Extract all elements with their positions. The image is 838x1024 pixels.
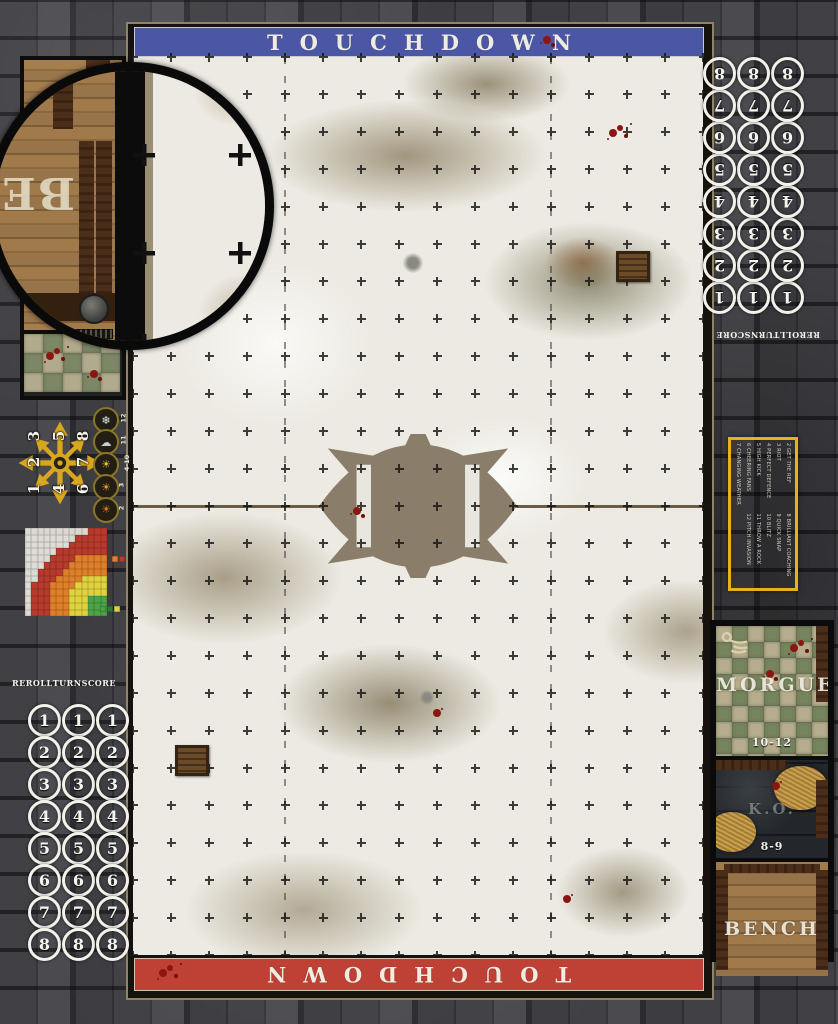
blood-splatter bbox=[790, 644, 798, 652]
grid-cross bbox=[243, 539, 252, 548]
turn-track-header: TURN bbox=[750, 330, 779, 340]
grid-cross bbox=[547, 352, 556, 361]
grid-cross bbox=[509, 277, 518, 286]
grid-cross bbox=[129, 614, 138, 623]
grid-cross bbox=[243, 913, 252, 922]
checker-tile bbox=[780, 706, 796, 722]
grid-cross bbox=[357, 165, 366, 174]
grid-cross bbox=[395, 53, 404, 62]
turn-track-headers: REROLLTURNSCORE bbox=[12, 678, 116, 688]
grid-cross bbox=[357, 90, 366, 99]
blood-splatter bbox=[563, 895, 571, 903]
grid-cross bbox=[395, 801, 404, 810]
turn-track-circle: 6 bbox=[771, 121, 804, 154]
checker-tile bbox=[24, 373, 43, 392]
grid-cross bbox=[547, 689, 556, 698]
grid-cross bbox=[547, 165, 556, 174]
grid-cross bbox=[699, 314, 708, 323]
grid-cross bbox=[623, 614, 632, 623]
grid-cross bbox=[167, 502, 176, 511]
grid-cross bbox=[623, 576, 632, 585]
turn-track-circle: 4 bbox=[737, 185, 770, 218]
turn-track-circle: 2 bbox=[28, 736, 61, 769]
range-cell bbox=[25, 582, 31, 589]
turn-track-circle: 8 bbox=[28, 928, 61, 961]
grid-cross bbox=[585, 576, 594, 585]
grid-cross bbox=[395, 389, 404, 398]
weather-roll-label: 3 bbox=[117, 483, 125, 488]
grid-cross bbox=[585, 764, 594, 773]
checker-tile bbox=[764, 642, 780, 658]
grid-cross bbox=[395, 127, 404, 136]
scatter-number: 1 bbox=[25, 484, 43, 494]
grid-cross bbox=[243, 838, 252, 847]
grid-cross bbox=[205, 876, 214, 885]
grid-cross bbox=[547, 502, 556, 511]
grid-cross bbox=[699, 576, 708, 585]
grid-cross bbox=[205, 427, 214, 436]
grid-cross bbox=[319, 277, 328, 286]
grid-cross bbox=[585, 352, 594, 361]
range-cell bbox=[101, 562, 107, 569]
grid-cross bbox=[585, 614, 594, 623]
checker-tile bbox=[748, 658, 764, 674]
grid-cross bbox=[205, 614, 214, 623]
grid-cross bbox=[471, 53, 480, 62]
turn-track-circle: 5 bbox=[28, 832, 61, 865]
grid-cross bbox=[623, 90, 632, 99]
morgue-box: MORGUE 10-12 bbox=[716, 626, 828, 756]
checker-tile bbox=[748, 706, 764, 722]
checker-tile bbox=[732, 754, 748, 756]
grid-cross bbox=[167, 726, 176, 735]
bench-box: BENCH bbox=[716, 862, 828, 976]
checker-tile bbox=[780, 658, 796, 674]
grid-cross bbox=[357, 427, 366, 436]
range-cell bbox=[101, 576, 107, 583]
grid-cross bbox=[319, 764, 328, 773]
grid-cross bbox=[433, 314, 442, 323]
grid-cross bbox=[243, 502, 252, 511]
scatter-number: 2 bbox=[25, 457, 43, 467]
grid-cross bbox=[471, 838, 480, 847]
touchdown-banner-bottom: TOUCHDOWN bbox=[134, 958, 704, 991]
grid-cross bbox=[699, 502, 708, 511]
grid-cross bbox=[319, 90, 328, 99]
range-legend-swatch bbox=[114, 606, 120, 612]
grid-cross bbox=[547, 764, 556, 773]
turn-track-circle: 7 bbox=[28, 896, 61, 929]
grid-cross bbox=[357, 838, 366, 847]
grid-cross bbox=[661, 502, 670, 511]
range-cell bbox=[50, 548, 56, 555]
wood-post bbox=[716, 760, 786, 770]
grid-cross bbox=[585, 53, 594, 62]
grid-cross bbox=[585, 314, 594, 323]
morgue-range: 10-12 bbox=[716, 736, 828, 749]
range-cell bbox=[38, 562, 44, 569]
turn-track-circle: 6 bbox=[28, 864, 61, 897]
grid-cross bbox=[433, 913, 442, 922]
turn-track-circle: 2 bbox=[771, 249, 804, 282]
grid-cross bbox=[167, 689, 176, 698]
grid-cross bbox=[281, 913, 290, 922]
grid-cross bbox=[319, 389, 328, 398]
turn-track-circle: 6 bbox=[62, 864, 95, 897]
grid-cross bbox=[623, 165, 632, 174]
grid-cross bbox=[243, 801, 252, 810]
grid-cross bbox=[281, 464, 290, 473]
grid-cross bbox=[471, 651, 480, 660]
grey-splat bbox=[419, 690, 435, 705]
grid-cross bbox=[395, 352, 404, 361]
grid-cross bbox=[395, 913, 404, 922]
grid-cross bbox=[395, 726, 404, 735]
grid-cross bbox=[547, 464, 556, 473]
grid-cross bbox=[509, 502, 518, 511]
grid-cross bbox=[243, 651, 252, 660]
grid-cross bbox=[129, 576, 138, 585]
range-legend-swatch bbox=[100, 606, 106, 612]
grid-cross bbox=[205, 726, 214, 735]
grid-cross bbox=[547, 90, 556, 99]
checker-tile bbox=[796, 754, 812, 756]
grid-cross bbox=[585, 427, 594, 436]
grid-cross bbox=[699, 614, 708, 623]
grid-cross bbox=[585, 127, 594, 136]
grid-cross bbox=[281, 614, 290, 623]
grid-cross bbox=[433, 651, 442, 660]
grid-cross bbox=[661, 764, 670, 773]
grid-cross bbox=[471, 464, 480, 473]
grid-cross bbox=[281, 314, 290, 323]
grid-cross bbox=[471, 240, 480, 249]
grid-cross bbox=[281, 801, 290, 810]
turn-track-circle: 8 bbox=[771, 57, 804, 90]
grid-cross bbox=[585, 240, 594, 249]
grid-cross bbox=[357, 689, 366, 698]
grid-cross bbox=[395, 614, 404, 623]
range-cell bbox=[44, 555, 50, 562]
grid-cross bbox=[129, 427, 138, 436]
grid-cross bbox=[357, 801, 366, 810]
grid-cross bbox=[661, 202, 670, 211]
grid-cross bbox=[395, 464, 404, 473]
grid-cross bbox=[433, 876, 442, 885]
grid-cross bbox=[357, 876, 366, 885]
scatter-number: 6 bbox=[74, 484, 92, 494]
grid-cross bbox=[509, 614, 518, 623]
grid-cross bbox=[623, 913, 632, 922]
grid-cross bbox=[471, 127, 480, 136]
grid-cross bbox=[433, 202, 442, 211]
grid-cross bbox=[623, 352, 632, 361]
turn-track-circle: 1 bbox=[703, 281, 736, 314]
grid-cross bbox=[243, 464, 252, 473]
grid-cross bbox=[243, 576, 252, 585]
checker-tile bbox=[796, 658, 812, 674]
grid-cross bbox=[509, 576, 518, 585]
turn-track-circle: 6 bbox=[96, 864, 129, 897]
weather-roll-label: 12 bbox=[120, 413, 128, 422]
grid-cross bbox=[699, 801, 708, 810]
grid-cross bbox=[281, 389, 290, 398]
grid-cross bbox=[585, 726, 594, 735]
magnified-dugout-border bbox=[115, 71, 145, 341]
grid-cross bbox=[623, 764, 632, 773]
turn-track-circle: 8 bbox=[96, 928, 129, 961]
range-legend-swatch bbox=[107, 606, 113, 612]
grid-cross bbox=[547, 913, 556, 922]
skeleton-decal bbox=[720, 630, 754, 660]
grid-cross bbox=[205, 801, 214, 810]
grid-cross bbox=[471, 502, 480, 511]
grid-cross bbox=[129, 913, 138, 922]
grid-cross bbox=[319, 913, 328, 922]
turn-track-left: REROLLTURNSCORE111222333444555666777888 bbox=[8, 678, 120, 968]
grid-cross bbox=[623, 539, 632, 548]
grid-cross bbox=[205, 539, 214, 548]
checker-tile bbox=[812, 754, 828, 756]
blood-splatter bbox=[609, 129, 617, 137]
grid-cross bbox=[661, 726, 670, 735]
grid-cross bbox=[547, 539, 556, 548]
grid-cross bbox=[623, 127, 632, 136]
grid-cross bbox=[319, 314, 328, 323]
checker-tile bbox=[796, 626, 812, 642]
grid-cross bbox=[471, 314, 480, 323]
grid-cross bbox=[509, 464, 518, 473]
grid-cross bbox=[357, 539, 366, 548]
grid-cross bbox=[357, 651, 366, 660]
turn-track-circle: 1 bbox=[28, 704, 61, 737]
grid-cross bbox=[357, 277, 366, 286]
grid-cross bbox=[547, 202, 556, 211]
grid-cross bbox=[509, 726, 518, 735]
blood-splatter bbox=[46, 352, 54, 360]
grid-cross bbox=[281, 53, 290, 62]
scatter-number: 7 bbox=[74, 457, 92, 467]
grid-cross bbox=[281, 539, 290, 548]
grid-cross bbox=[509, 913, 518, 922]
checker-tile bbox=[732, 706, 748, 722]
turn-track-circle: 5 bbox=[62, 832, 95, 865]
turn-track-circle: 7 bbox=[737, 89, 770, 122]
blood-splatter bbox=[772, 782, 780, 790]
checker-tile bbox=[101, 373, 120, 392]
grid-cross bbox=[585, 464, 594, 473]
grid-cross bbox=[433, 90, 442, 99]
grid-cross bbox=[623, 427, 632, 436]
grid-cross bbox=[357, 389, 366, 398]
grid-cross bbox=[167, 651, 176, 660]
grid-cross bbox=[509, 689, 518, 698]
grid-cross bbox=[395, 838, 404, 847]
grid-cross bbox=[661, 801, 670, 810]
turn-track-circle: 1 bbox=[771, 281, 804, 314]
grid-cross bbox=[243, 389, 252, 398]
turn-track-circle: 2 bbox=[737, 249, 770, 282]
grid-cross bbox=[129, 801, 138, 810]
turn-track-circle: 6 bbox=[703, 121, 736, 154]
grid-cross bbox=[585, 539, 594, 548]
grid-cross bbox=[699, 689, 708, 698]
turn-track-circle: 2 bbox=[96, 736, 129, 769]
grid-cross bbox=[509, 801, 518, 810]
grey-splat bbox=[402, 253, 424, 273]
grid-cross bbox=[661, 389, 670, 398]
grid-cross bbox=[357, 202, 366, 211]
blood-splatter bbox=[90, 370, 98, 378]
grid-cross bbox=[433, 165, 442, 174]
grid-cross bbox=[167, 427, 176, 436]
grid-cross bbox=[661, 464, 670, 473]
grid-cross bbox=[281, 352, 290, 361]
grid-cross bbox=[167, 389, 176, 398]
grid-cross bbox=[319, 651, 328, 660]
grid-cross bbox=[661, 277, 670, 286]
turn-track-header: SCORE bbox=[716, 330, 750, 340]
range-cell bbox=[25, 589, 31, 596]
grid-cross bbox=[471, 277, 480, 286]
grid-cross bbox=[357, 614, 366, 623]
sweltering-heat-icon: ☀ bbox=[93, 497, 119, 523]
grid-cross bbox=[547, 53, 556, 62]
grid-cross bbox=[281, 165, 290, 174]
grid-cross bbox=[509, 127, 518, 136]
grid-cross bbox=[509, 838, 518, 847]
turn-track-header: TURN bbox=[53, 678, 82, 688]
grid-cross bbox=[661, 314, 670, 323]
grid-cross bbox=[357, 314, 366, 323]
turn-track-circle: 6 bbox=[737, 121, 770, 154]
grid-cross bbox=[547, 427, 556, 436]
grid-cross bbox=[243, 427, 252, 436]
turn-track-circle: 3 bbox=[96, 768, 129, 801]
grid-cross bbox=[699, 464, 708, 473]
dugout-right: MORGUE 10-12 K.O. 8-9 BENCH bbox=[710, 620, 834, 962]
grid-cross bbox=[699, 838, 708, 847]
grid-cross bbox=[509, 240, 518, 249]
grid-cross bbox=[585, 277, 594, 286]
range-cell bbox=[25, 596, 31, 603]
grid-cross bbox=[509, 651, 518, 660]
grid-cross bbox=[167, 539, 176, 548]
kickoff-entry: 3 RIOT bbox=[776, 443, 781, 513]
grid-cross bbox=[319, 838, 328, 847]
grid-cross bbox=[471, 389, 480, 398]
grid-cross bbox=[395, 539, 404, 548]
grid-cross bbox=[319, 576, 328, 585]
grid-cross bbox=[129, 352, 138, 361]
grid-cross bbox=[509, 202, 518, 211]
turn-track-right: REROLLTURNSCORE111222333444555666777888 bbox=[712, 56, 824, 340]
grid-cross bbox=[129, 838, 138, 847]
grid-cross bbox=[471, 576, 480, 585]
grid-cross bbox=[395, 502, 404, 511]
grid-cross bbox=[433, 838, 442, 847]
grid-cross bbox=[395, 240, 404, 249]
grid-cross bbox=[547, 389, 556, 398]
grid-cross bbox=[167, 801, 176, 810]
turn-track-circle: 7 bbox=[771, 89, 804, 122]
grid-cross bbox=[357, 576, 366, 585]
grid-cross bbox=[395, 576, 404, 585]
turn-track-circle: 8 bbox=[62, 928, 95, 961]
checker-tile bbox=[764, 706, 780, 722]
grid-cross bbox=[357, 127, 366, 136]
scatter-number: 4 bbox=[50, 484, 68, 494]
grid-cross bbox=[205, 838, 214, 847]
checker-tile bbox=[716, 706, 732, 722]
grid-cross bbox=[281, 277, 290, 286]
grid-cross bbox=[585, 502, 594, 511]
grid-cross bbox=[661, 838, 670, 847]
range-cell bbox=[82, 528, 88, 535]
kickoff-table: 2 GET THE REF3 RIOT4 PERFECT DEFENCE5 HI… bbox=[728, 437, 798, 591]
crate bbox=[616, 251, 650, 282]
grid-cross bbox=[699, 764, 708, 773]
turn-track-circle: 3 bbox=[28, 768, 61, 801]
grid-cross bbox=[395, 876, 404, 885]
turn-track-circle: 4 bbox=[62, 800, 95, 833]
grid-cross bbox=[623, 240, 632, 249]
grid-cross bbox=[585, 838, 594, 847]
grid-cross bbox=[319, 240, 328, 249]
grid-cross bbox=[357, 726, 366, 735]
grid-cross bbox=[661, 689, 670, 698]
grid-cross bbox=[661, 427, 670, 436]
grid-cross bbox=[699, 277, 708, 286]
grid-cross bbox=[319, 876, 328, 885]
turn-track-circle: 5 bbox=[96, 832, 129, 865]
grid-cross bbox=[243, 764, 252, 773]
grid-cross bbox=[471, 202, 480, 211]
grid-cross bbox=[433, 576, 442, 585]
turn-track-circle: 8 bbox=[703, 57, 736, 90]
grid-cross bbox=[471, 801, 480, 810]
grid-cross bbox=[243, 876, 252, 885]
grid-cross bbox=[319, 801, 328, 810]
grid-cross bbox=[281, 240, 290, 249]
grid-cross bbox=[319, 502, 328, 511]
checker-tile bbox=[764, 626, 780, 642]
grid-cross bbox=[357, 352, 366, 361]
checker-tile bbox=[796, 642, 812, 658]
grid-cross bbox=[243, 726, 252, 735]
grid-cross bbox=[395, 165, 404, 174]
grid-cross bbox=[281, 202, 290, 211]
grid-cross bbox=[699, 651, 708, 660]
grid-cross bbox=[205, 53, 214, 62]
grid-cross bbox=[623, 464, 632, 473]
turn-track-header: REROLL bbox=[12, 678, 53, 688]
turn-track-circle: 4 bbox=[96, 800, 129, 833]
grid-cross bbox=[623, 801, 632, 810]
grid-cross bbox=[357, 764, 366, 773]
range-cell bbox=[101, 555, 107, 562]
range-cell bbox=[101, 542, 107, 549]
grid-cross bbox=[471, 764, 480, 773]
grid-cross bbox=[319, 165, 328, 174]
grid-cross bbox=[319, 352, 328, 361]
grid-cross bbox=[243, 689, 252, 698]
grid-cross bbox=[129, 689, 138, 698]
turn-track-header: REROLL bbox=[779, 330, 820, 340]
grid-cross bbox=[471, 876, 480, 885]
turn-track-circle: 4 bbox=[771, 185, 804, 218]
grid-cross bbox=[433, 539, 442, 548]
